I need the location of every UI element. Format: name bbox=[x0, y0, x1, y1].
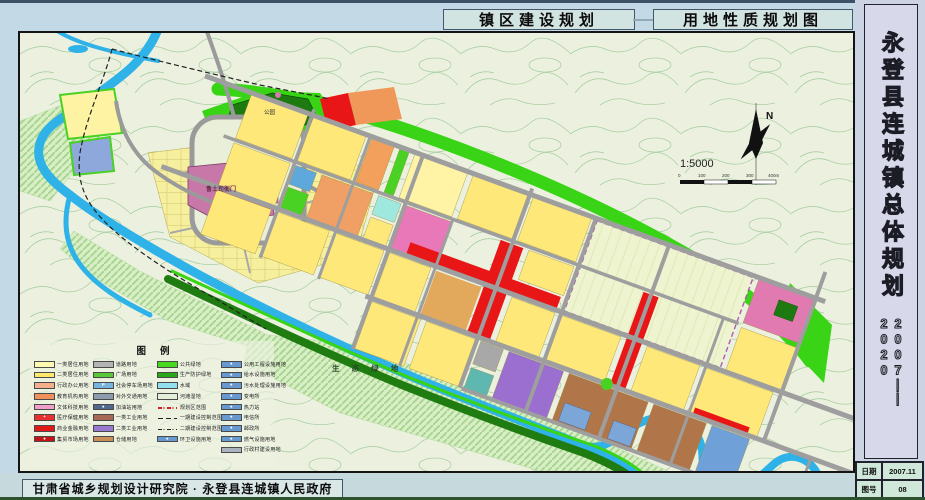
legend-item-label: 公共绿地 bbox=[180, 361, 201, 368]
village-residential-block bbox=[60, 89, 122, 139]
legend-item: 行政村建设用地 bbox=[221, 446, 281, 455]
legend-item: ●集贸市场用地 bbox=[34, 435, 89, 444]
legend-item-label: 给水设施用地 bbox=[244, 371, 276, 378]
legend-column: 一类居住用地二类居住用地行政办公用地教育机构用地文体科技用地+医疗保健用地商业金… bbox=[34, 360, 89, 454]
plan-year-start: 2007 bbox=[891, 317, 905, 379]
legend-swatch: ● bbox=[221, 436, 242, 443]
legend-swatch bbox=[157, 414, 178, 421]
legend-item-label: 热力站 bbox=[244, 404, 260, 411]
legend-item-label: 文体科技用地 bbox=[57, 404, 89, 411]
legend-swatch bbox=[157, 393, 178, 400]
map-canvas[interactable]: 鲁土司衙门 公园 生 态 绿 地 N 1:5000 0 100 200 300 … bbox=[18, 31, 855, 473]
bottom-strip: 甘肃省城乡规划设计研究院 · 永登县连城镇人民政府 bbox=[0, 473, 855, 500]
title-left-text: 镇区建设规划 bbox=[479, 9, 599, 30]
legend-item-label: 一类工业用地 bbox=[116, 414, 148, 421]
legend-swatch: ● bbox=[221, 372, 242, 379]
legend-swatch bbox=[34, 425, 55, 432]
legend-item: ●环卫设施用地 bbox=[157, 435, 217, 444]
legend-item: 二类居住用地 bbox=[34, 371, 89, 380]
legend-item: ●电信所 bbox=[221, 413, 281, 422]
legend-item: 公共绿地 bbox=[157, 360, 217, 369]
legend-swatch bbox=[34, 372, 55, 379]
title-right-text: 用地性质规划图 bbox=[683, 9, 823, 30]
legend-item-label: 社会停车场用地 bbox=[116, 382, 153, 389]
legend-item: P社会停车场用地 bbox=[93, 381, 153, 390]
legend-swatch bbox=[34, 382, 55, 389]
legend-item-label: 医疗保健用地 bbox=[57, 414, 89, 421]
sheet-number-label: 图号 bbox=[856, 480, 882, 498]
title-box-left: 镇区建设规划 bbox=[443, 9, 635, 30]
credit-box: 甘肃省城乡规划设计研究院 · 永登县连城镇人民政府 bbox=[22, 479, 343, 498]
legend-item-label: 仓储用地 bbox=[116, 436, 137, 443]
legend-item: 生产防护绿地 bbox=[157, 371, 217, 380]
date-value: 2007.11 bbox=[882, 462, 923, 480]
legend-item-label: 规划区范围 bbox=[180, 404, 207, 411]
legend-item-label: 一期建设控制范围 bbox=[180, 414, 222, 421]
legend-swatch bbox=[157, 361, 178, 368]
legend-item-label: 生产防护绿地 bbox=[180, 371, 212, 378]
legend-item-label: 变电所 bbox=[244, 393, 260, 400]
legend-item-label: 二类居住用地 bbox=[57, 371, 89, 378]
legend-swatch bbox=[34, 393, 55, 400]
legend-item: ●加油站用地 bbox=[93, 403, 153, 412]
legend-item-label: 邮政所 bbox=[244, 425, 260, 432]
legend-item: ●污水处理设施用地 bbox=[221, 381, 281, 390]
yamen-label: 鲁土司衙门 bbox=[206, 185, 236, 193]
legend-swatch: ● bbox=[221, 393, 242, 400]
legend-item: 一期建设控制范围 bbox=[157, 413, 217, 422]
scale-tick: 100 bbox=[698, 173, 706, 178]
legend-swatch bbox=[157, 382, 178, 389]
legend-item: 行政办公用地 bbox=[34, 381, 89, 390]
plan-years-vertical: 2007——2020 bbox=[877, 317, 905, 458]
sheet-number-value: 08 bbox=[882, 480, 923, 498]
legend-column: 公共绿地生产防护绿地水域河滩湿地规划区范围一期建设控制范围二期建设控制范围●环卫… bbox=[157, 360, 217, 454]
legend-swatch bbox=[93, 425, 114, 432]
legend-swatch: ● bbox=[93, 404, 114, 411]
legend-item: 一类工业用地 bbox=[93, 413, 153, 422]
legend-item-label: 污水处理设施用地 bbox=[244, 382, 286, 389]
legend-swatch bbox=[157, 404, 178, 411]
legend-swatch: ● bbox=[221, 425, 242, 432]
legend-item: 河滩湿地 bbox=[157, 392, 217, 401]
legend-swatch: + bbox=[34, 414, 55, 421]
legend-item: ●变电所 bbox=[221, 392, 281, 401]
legend-item: 二类工业用地 bbox=[93, 424, 153, 433]
legend-item: 文体科技用地 bbox=[34, 403, 89, 412]
title-connector bbox=[633, 19, 655, 21]
legend-swatch bbox=[93, 361, 114, 368]
legend-item-label: 环卫设施用地 bbox=[180, 436, 212, 443]
scale-tick: 200 bbox=[722, 173, 730, 178]
legend-swatch bbox=[93, 372, 114, 379]
legend-column: 道路用地广场用地P社会停车场用地对外交通用地●加油站用地一类工业用地二类工业用地… bbox=[93, 360, 153, 454]
eco-zone-label: 生 态 绿 地 bbox=[332, 363, 403, 373]
sheet-info-table: 日期 2007.11 图号 08 bbox=[855, 461, 924, 499]
legend-item: 规划区范围 bbox=[157, 403, 217, 412]
legend-swatch bbox=[157, 425, 178, 432]
legend-item-label: 二类工业用地 bbox=[116, 425, 148, 432]
date-label: 日期 bbox=[856, 462, 882, 480]
scale-text: 1:5000 bbox=[680, 158, 714, 170]
legend-item: 教育机构用地 bbox=[34, 392, 89, 401]
plan-year-end: 2020 bbox=[877, 317, 891, 379]
legend-item: ●热力站 bbox=[221, 403, 281, 412]
legend-columns: 一类居住用地二类居住用地行政办公用地教育机构用地文体科技用地+医疗保健用地商业金… bbox=[34, 360, 272, 454]
legend-column: ●公用工程设施用地●给水设施用地●污水处理设施用地●变电所●热力站●电信所●邮政… bbox=[221, 360, 281, 454]
sidebar-panel: 永登县连城镇总体规划 2007——2020 bbox=[864, 4, 918, 459]
legend-item: +医疗保健用地 bbox=[34, 413, 89, 422]
legend-item-label: 公用工程设施用地 bbox=[244, 361, 286, 368]
legend-panel: 图例 一类居住用地二类居住用地行政办公用地教育机构用地文体科技用地+医疗保健用地… bbox=[30, 341, 274, 467]
legend-item: 道路用地 bbox=[93, 360, 153, 369]
legend-item-label: 广场用地 bbox=[116, 371, 137, 378]
credit-text: 甘肃省城乡规划设计研究院 · 永登县连城镇人民政府 bbox=[33, 480, 333, 497]
legend-swatch bbox=[34, 361, 55, 368]
legend-swatch bbox=[93, 393, 114, 400]
legend-swatch bbox=[93, 414, 114, 421]
park-label: 公园 bbox=[264, 109, 276, 116]
legend-swatch: ● bbox=[221, 404, 242, 411]
legend-item-label: 二期建设控制范围 bbox=[180, 425, 222, 432]
scale-tick: 400m bbox=[768, 173, 780, 178]
top-border bbox=[0, 0, 925, 3]
legend-item: 二期建设控制范围 bbox=[157, 424, 217, 433]
legend-swatch: ● bbox=[221, 414, 242, 421]
legend-item: 仓储用地 bbox=[93, 435, 153, 444]
legend-item-label: 加油站用地 bbox=[116, 404, 143, 411]
legend-item: 一类居住用地 bbox=[34, 360, 89, 369]
legend-item: 商业金融用地 bbox=[34, 424, 89, 433]
legend-item: 水域 bbox=[157, 381, 217, 390]
legend-item-label: 对外交通用地 bbox=[116, 393, 148, 400]
legend-item-label: 电信所 bbox=[244, 414, 260, 421]
legend-item-label: 河滩湿地 bbox=[180, 393, 201, 400]
legend-swatch bbox=[157, 372, 178, 379]
legend-item: ●公用工程设施用地 bbox=[221, 360, 281, 369]
north-label: N bbox=[766, 111, 773, 122]
plan-title-vertical: 永登县连城镇总体规划 bbox=[875, 31, 907, 301]
legend-swatch: ● bbox=[221, 382, 242, 389]
legend-item-label: 道路用地 bbox=[116, 361, 137, 368]
legend-swatch bbox=[34, 404, 55, 411]
title-box-right: 用地性质规划图 bbox=[653, 9, 853, 30]
plan-year-dash: —— bbox=[891, 379, 905, 407]
sidebar-strip: 永登县连城镇总体规划 2007——2020 bbox=[855, 0, 925, 500]
legend-swatch: ● bbox=[221, 361, 242, 368]
legend-swatch: ● bbox=[157, 436, 178, 443]
planning-sheet: 镇区建设规划 用地性质规划图 bbox=[0, 0, 925, 500]
scale-tick: 300 bbox=[746, 173, 754, 178]
legend-item: 对外交通用地 bbox=[93, 392, 153, 401]
legend-swatch bbox=[93, 436, 114, 443]
legend-item-label: 商业金融用地 bbox=[57, 425, 89, 432]
legend-item-label: 水域 bbox=[180, 382, 191, 389]
legend-item: 广场用地 bbox=[93, 371, 153, 380]
legend-item: ●给水设施用地 bbox=[221, 371, 281, 380]
legend-title: 图例 bbox=[34, 343, 272, 357]
legend-item-label: 燃气设施用地 bbox=[244, 436, 276, 443]
legend-item-label: 教育机构用地 bbox=[57, 393, 89, 400]
legend-swatch: P bbox=[93, 382, 114, 389]
legend-item-label: 行政村建设用地 bbox=[244, 446, 281, 453]
legend-swatch: ● bbox=[34, 436, 55, 443]
legend-swatch bbox=[221, 447, 242, 454]
legend-item: ●邮政所 bbox=[221, 424, 281, 433]
legend-item: ●燃气设施用地 bbox=[221, 435, 281, 444]
legend-item-label: 集贸市场用地 bbox=[57, 436, 89, 443]
legend-item-label: 一类居住用地 bbox=[57, 361, 89, 368]
legend-item-label: 行政办公用地 bbox=[57, 382, 89, 389]
facility-block bbox=[70, 137, 114, 175]
education-block bbox=[348, 87, 402, 125]
